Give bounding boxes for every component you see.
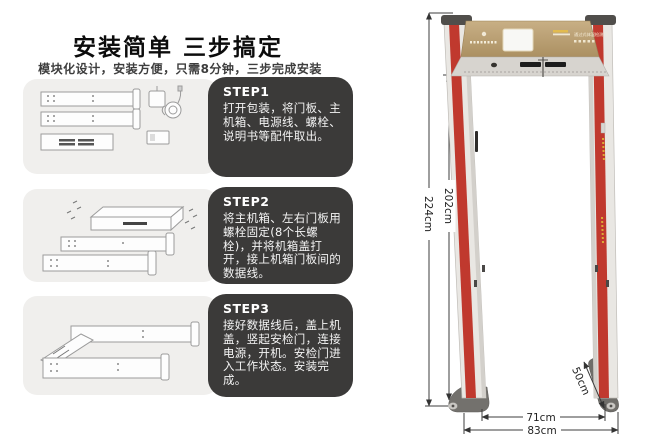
sensor-bar-right xyxy=(545,62,566,67)
step-row-1: STEP1 打开包装，将门板、主机箱、电源线、螺栓、说明书等配件取出。 xyxy=(23,77,355,177)
step2-text: 将主机箱、左右门板用螺栓固定(8个长螺栓)，并将机箱盖打开，接上机箱门板间的数据… xyxy=(223,212,341,281)
step1-text: 打开包装，将门板、主机箱、电源线、螺栓、说明书等配件取出。 xyxy=(223,102,341,143)
step2-assembly-drawing xyxy=(23,189,218,282)
right-clip xyxy=(601,123,605,133)
step-row-3: STEP3 接好数据线后，盖上机盖，竖起安检门，连接电源，开机。安检门进入工作状… xyxy=(23,294,355,397)
header-underside xyxy=(451,57,609,77)
step2-illustration xyxy=(23,189,218,282)
step3-illustration xyxy=(23,296,218,395)
infographic-page: 安装简单 三步搞定 模块化设计，安装方便，只需8分钟，三步完成安装 xyxy=(0,0,653,442)
inner-width-dimension: 71cm xyxy=(482,404,605,424)
inner-width-label: 71cm xyxy=(526,412,555,424)
camera-dot xyxy=(491,63,497,68)
step3-text: 接好数据线后，盖上机盖，竖起安检门，连接电源，开机。安检门进入工作状态。安装完成… xyxy=(223,319,341,388)
base-depth-label: 50cm xyxy=(569,365,592,397)
left-speaker-slot xyxy=(475,131,478,152)
inner-height-label: 202cm xyxy=(442,188,454,224)
display-screen xyxy=(503,29,533,51)
step3-label: STEP3 xyxy=(223,301,341,316)
page-title: 安装简单 三步搞定 xyxy=(0,28,356,62)
header-panel: 通过式体温检测门 xyxy=(461,21,608,57)
step1-label: STEP1 xyxy=(223,84,341,99)
color-strip xyxy=(553,30,568,33)
outer-width-label: 83cm xyxy=(527,425,556,437)
install-steps-panel: 安装简单 三步搞定 模块化设计，安装方便，只需8分钟，三步完成安装 xyxy=(0,0,420,442)
detector-figure: 通过式体温检测门 xyxy=(420,0,653,442)
page-subtitle: 模块化设计，安装方便，只需8分钟，三步完成安装 xyxy=(0,60,360,77)
outer-height-label-group: 224cm xyxy=(422,188,435,240)
step1-illustration xyxy=(23,79,218,174)
step2-label: STEP2 xyxy=(223,194,341,209)
panel-title-text: 通过式体温检测门 xyxy=(574,31,608,38)
sensor-bar-left xyxy=(520,62,541,67)
step3-frame-drawing xyxy=(23,296,218,395)
step1-box: STEP1 打开包装，将门板、主机箱、电源线、螺栓、说明书等配件取出。 xyxy=(208,77,353,177)
detector-drawing: 通过式体温检测门 xyxy=(420,0,653,442)
outer-height-label: 224cm xyxy=(422,196,434,232)
step-row-2: STEP2 将主机箱、左右门板用螺栓固定(8个长螺栓)，并将机箱盖打开，接上机箱… xyxy=(23,187,355,284)
step3-box: STEP3 接好数据线后，盖上机盖，竖起安检门，连接电源，开机。安检门进入工作状… xyxy=(208,294,353,397)
step2-box: STEP2 将主机箱、左右门板用螺栓固定(8个长螺栓)，并将机箱盖打开，接上机箱… xyxy=(208,187,353,284)
inner-height-label-group: 202cm xyxy=(442,180,455,232)
step1-parts-drawing xyxy=(23,79,218,174)
